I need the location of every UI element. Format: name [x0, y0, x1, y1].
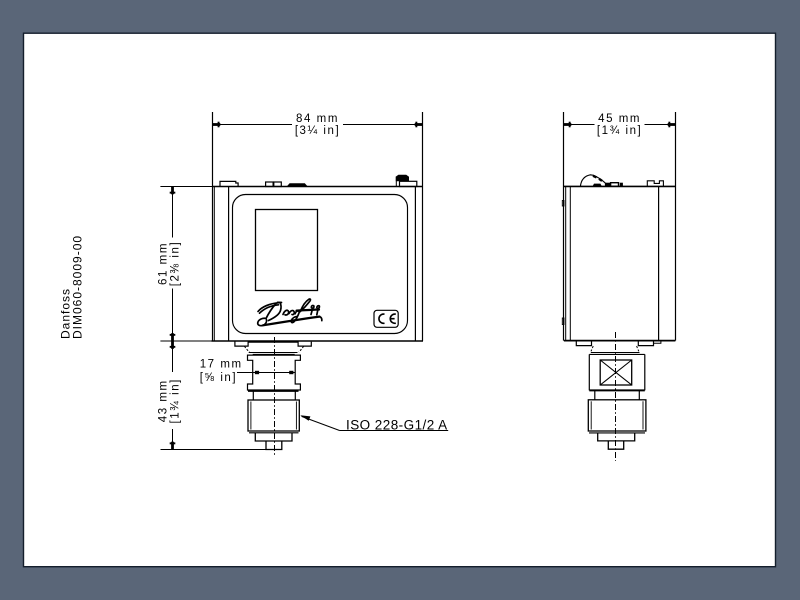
svg-text:84 mm: 84 mm: [296, 113, 339, 125]
svg-text:45 mm: 45 mm: [598, 113, 641, 125]
svg-text:DIM060-8009-00: DIM060-8009-00: [71, 235, 85, 339]
svg-text:[3¼ in]: [3¼ in]: [295, 125, 340, 137]
svg-text:ISO 228-G1/2 A: ISO 228-G1/2 A: [346, 417, 448, 432]
svg-text:[1¾ in]: [1¾ in]: [169, 378, 181, 423]
svg-text:[2⅜ in]: [2⅜ in]: [169, 241, 181, 286]
svg-text:[⅝ in]: [⅝ in]: [200, 372, 237, 384]
svg-text:61 mm: 61 mm: [158, 242, 170, 285]
svg-text:17 mm: 17 mm: [200, 359, 243, 371]
svg-text:43 mm: 43 mm: [158, 379, 170, 422]
svg-text:[1¾ in]: [1¾ in]: [597, 125, 642, 137]
